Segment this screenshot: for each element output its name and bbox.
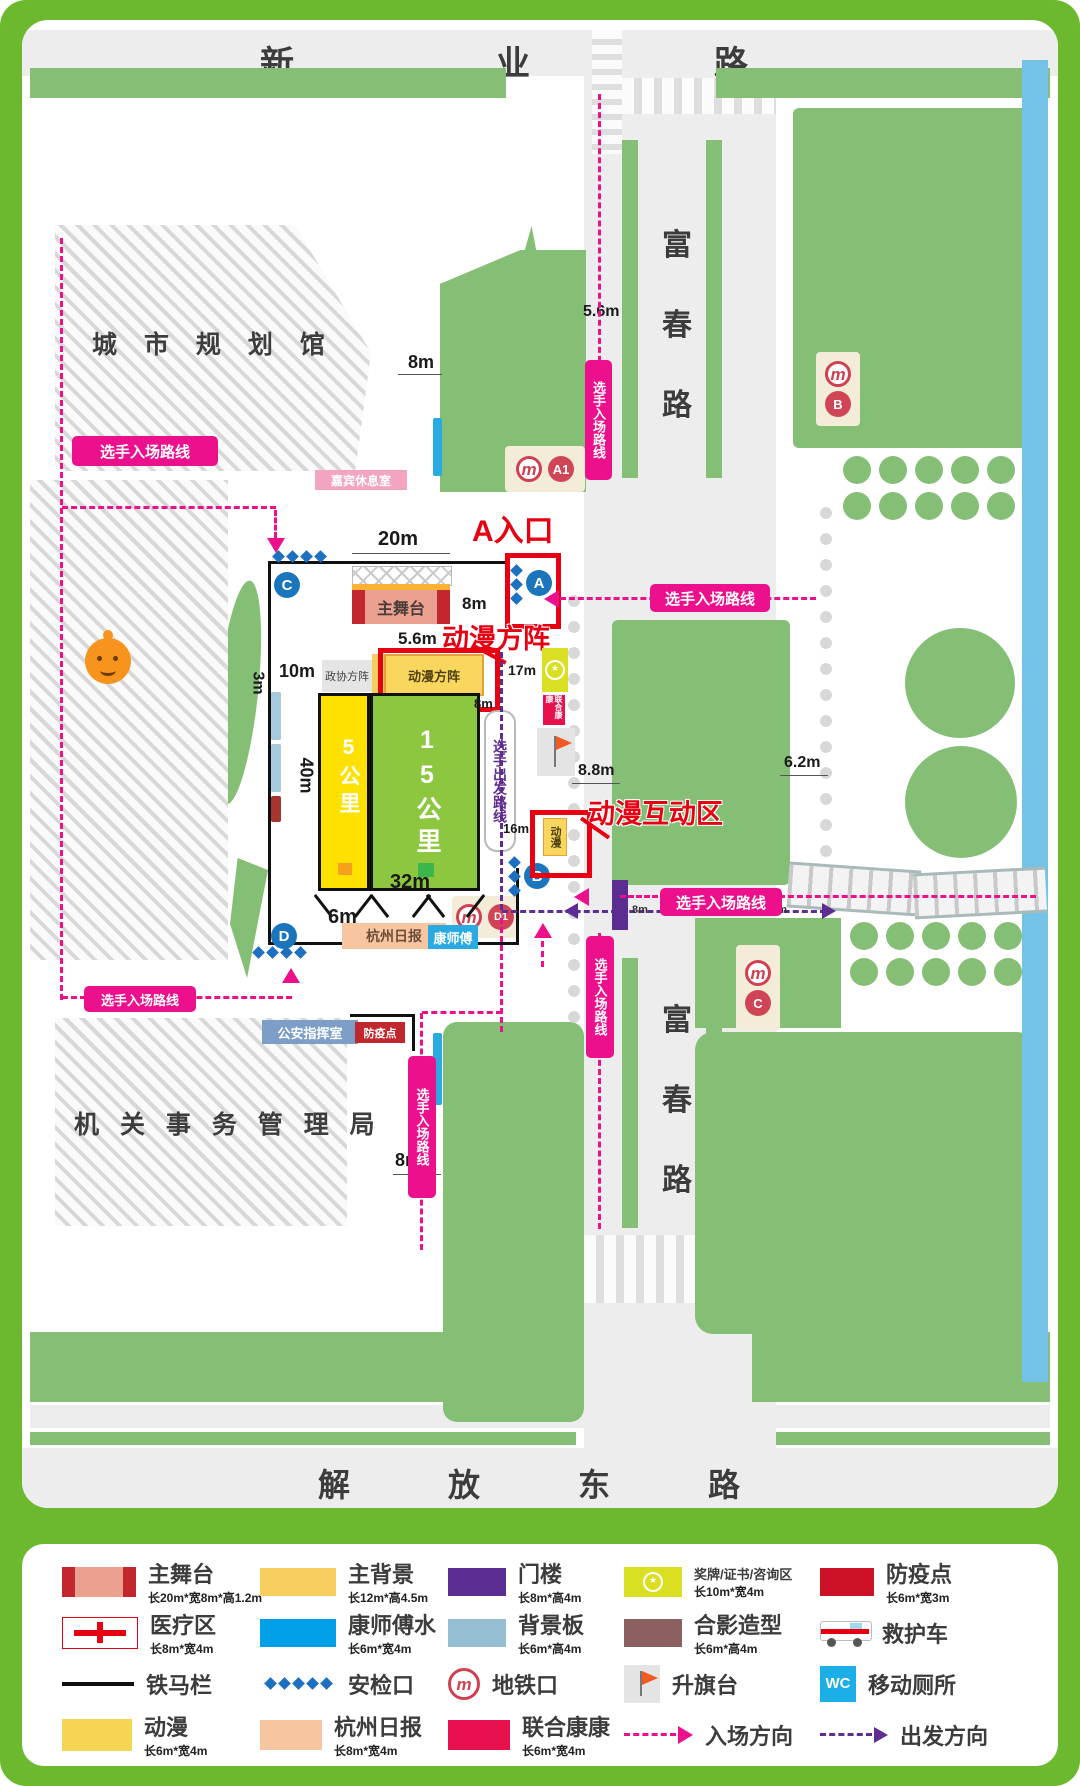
- dimension-line: [780, 775, 828, 776]
- police-command-text: 公安指挥室: [277, 1023, 342, 1042]
- gate-tower: [612, 880, 628, 930]
- medal-swatch: ★: [624, 1567, 682, 1597]
- legend-item-anime: 动漫长6m*宽4m: [62, 1710, 260, 1759]
- legend-item-board: 背景板长6m*高4m: [448, 1608, 624, 1657]
- tree-grid-ne: [843, 456, 1015, 520]
- mascot-icon: [85, 638, 131, 684]
- route-entry-label: 选手入场路线: [408, 1056, 436, 1198]
- master-kong-label: 康师傅: [433, 928, 472, 947]
- dimension-40m: 40m: [296, 757, 317, 793]
- entry-route-dashed: [422, 1011, 502, 1014]
- legend-item-security: 安检口: [260, 1668, 448, 1700]
- park-block-mid: [612, 620, 790, 885]
- legend-item-photo: 合影造型长6m*高4m: [624, 1608, 820, 1657]
- depart-arrow-right: [822, 903, 836, 919]
- entry-route-dashed: [598, 94, 601, 380]
- route-entry-label: 选手入场路线: [72, 436, 218, 466]
- vip-lounge-label: 嘉宾休息室: [315, 470, 407, 490]
- water-swatch: [260, 1619, 336, 1647]
- checkpoint-d: D: [271, 923, 297, 949]
- median-strip: [776, 1432, 1050, 1445]
- anime-zone-box: 动漫: [543, 818, 567, 856]
- anime-swatch: [62, 1719, 132, 1751]
- roadside-green: [752, 1332, 1050, 1402]
- legend-item-wc: WC 移动厕所: [820, 1666, 1052, 1702]
- legend-item-flag: 升旗台: [624, 1665, 820, 1703]
- union-kangkang-label: 联合康康: [545, 695, 563, 725]
- medical-swatch: [62, 1617, 138, 1649]
- start-block-15km-label: 15公里: [409, 726, 445, 860]
- dimension-line: [572, 783, 620, 784]
- dimension-6.2m: 6.2m: [784, 754, 820, 772]
- map-panel: 新 业 路 解 放 东 路 富 春 路 富 春 路: [22, 20, 1058, 1508]
- metro-exit-a1-badge: A1: [548, 456, 574, 482]
- dimension-5.6m-nw: 5.6m: [583, 303, 619, 321]
- vip-lounge-text: 嘉宾休息室: [331, 472, 391, 489]
- board-sign: [271, 744, 281, 792]
- barrier-swatch: [62, 1682, 134, 1686]
- dimension-8m-cross: 8m: [632, 904, 648, 916]
- red-sign: [271, 796, 281, 822]
- a-entrance-callout: A入口: [472, 506, 554, 550]
- street-fuchun-char: 春: [662, 300, 692, 344]
- security-check-icon: [254, 948, 305, 957]
- entry-arrow-up: [282, 968, 300, 983]
- flag-platform: [537, 728, 575, 776]
- park-block-sw: [443, 1022, 584, 1422]
- legend-panel: 主舞台长20m*宽8m*高1.2m 主背景长12m*高4.5m 门楼长8m*高4…: [22, 1544, 1058, 1766]
- entry-arrow-down: [267, 538, 285, 553]
- dimension-16m: 16m: [503, 821, 529, 836]
- checkpoint-c: C: [274, 572, 300, 598]
- median-strip: [622, 958, 638, 1228]
- legend-item-medal: ★ 奖牌/证书/咨询区长10m*宽4m: [624, 1564, 820, 1600]
- street-fuchun-char: 富: [662, 995, 692, 1039]
- backdrop-swatch: [260, 1568, 336, 1596]
- medal-certificate-area: ★: [542, 648, 568, 692]
- entry-direction-icon: [624, 1726, 693, 1744]
- master-kong-box: 康师傅: [428, 925, 478, 949]
- park-block-se: [695, 1032, 1035, 1334]
- epidemic-point-label: 防疫点: [355, 1022, 405, 1043]
- metro-station-a1: m A1: [505, 446, 585, 492]
- dimension-line: [398, 374, 442, 375]
- legend-item-epidemic: 防疫点长6m*宽3m: [820, 1557, 1052, 1606]
- medal-icon: ★: [545, 660, 565, 680]
- street-jiefangdong-road: [22, 1448, 1058, 1508]
- legend-item-daily: 杭州日报长8m*宽4m: [260, 1710, 448, 1759]
- entry-arrow-left: [544, 590, 559, 608]
- footbridge: [787, 861, 922, 916]
- entry-arrow-up: [534, 923, 552, 938]
- street-fuchun-char: 路: [662, 1155, 692, 1199]
- street-jiefangdong-char: 放: [448, 1460, 480, 1506]
- anime-zone-callout: 动漫互动区: [588, 792, 723, 831]
- median-strip: [622, 140, 638, 478]
- route-entry-label: 选手入场路线: [660, 888, 782, 916]
- dimension-8m-nw: 8m: [408, 352, 434, 373]
- roadside-green: [30, 68, 506, 98]
- depart-direction-icon: [820, 1727, 888, 1743]
- hangzhou-daily-label: 杭州日报: [366, 926, 422, 946]
- median-strip: [30, 1432, 576, 1445]
- entry-route-dashed: [274, 510, 277, 538]
- dimension-20m: 20m: [378, 528, 418, 551]
- entry-arrow-left: [574, 888, 589, 906]
- metro-station-c: m C: [736, 945, 780, 1031]
- tree-grid-se: [850, 922, 1022, 986]
- street-jiefangdong-char: 路: [708, 1460, 740, 1506]
- corral-fence-top: [268, 561, 506, 564]
- union-kangkang-box: 联合康康: [543, 695, 565, 725]
- street-jiefangdong-char: 东: [578, 1460, 610, 1506]
- roadside-green: [716, 68, 1050, 98]
- gate-swatch: [448, 1568, 506, 1596]
- metro-station-b: m B: [816, 352, 860, 426]
- photo-swatch: [624, 1619, 682, 1647]
- zhengxie-squad-box: 政协方阵: [322, 660, 372, 692]
- security-check-icon: [510, 858, 519, 895]
- building-planning-hall-label: 城 市 规 划 馆: [92, 325, 335, 361]
- entry-route-dashed: [500, 918, 503, 1032]
- start-block-5km: 5公里: [318, 693, 370, 891]
- dimension-10m: 10m: [279, 661, 315, 682]
- security-check-icon: [260, 1679, 336, 1688]
- legend-item-depart-direction: 出发方向: [820, 1719, 1052, 1751]
- zhengxie-squad-label: 政协方阵: [325, 668, 369, 684]
- legend-item-water: 康师傅水长6m*宽4m: [260, 1608, 448, 1657]
- legend-item-backdrop: 主背景长12m*高4.5m: [260, 1557, 448, 1606]
- dimension-8m-route: 8m: [474, 696, 493, 711]
- dimension-32m: 32m: [390, 871, 430, 894]
- entry-route-dashed: [770, 895, 1036, 898]
- flag-icon: [624, 1665, 660, 1703]
- green-wedge: [230, 858, 268, 978]
- street-jiefangdong-char: 解: [318, 1460, 350, 1506]
- metro-icon: m: [448, 1668, 480, 1700]
- legend-item-medical: 医疗区长8m*宽4m: [62, 1608, 260, 1657]
- street-fuchun-char: 富: [662, 220, 692, 264]
- metro-exit-c-badge: C: [745, 990, 771, 1016]
- event-map-poster: 新 业 路 解 放 东 路 富 春 路 富 春 路: [0, 0, 1080, 1786]
- footbridge: [913, 867, 1047, 920]
- dimension-line: [352, 553, 450, 554]
- street-fuchun-char: 春: [662, 1075, 692, 1119]
- security-check-icon: [274, 552, 325, 561]
- wc-icon: WC: [820, 1666, 856, 1702]
- stage-truss: [352, 566, 452, 586]
- corral-fence-left: [268, 561, 271, 945]
- route-entry-label: 选手入场路线: [586, 936, 614, 1058]
- police-command-label: 公安指挥室: [262, 1020, 358, 1044]
- legend-item-metro: m 地铁口: [448, 1668, 624, 1700]
- anime-squad-label: 动漫方阵: [408, 666, 460, 685]
- start-block-15km: 15公里: [370, 693, 480, 891]
- building-admin-bureau-label: 机 关 事 务 管 理 局: [74, 1105, 382, 1141]
- dimension-8m-stage: 8m: [462, 594, 487, 614]
- marker-square-orange: [338, 863, 352, 875]
- legend-item-ambulance: 救护车: [820, 1617, 1052, 1649]
- street-fuchun-char: 路: [662, 380, 692, 424]
- main-stage: 主舞台: [352, 584, 450, 624]
- blue-sign: [433, 418, 442, 476]
- board-swatch: [448, 1619, 506, 1647]
- legend-item-gate: 门楼长8m*高4m: [448, 1557, 624, 1606]
- entry-route-dashed: [62, 506, 276, 509]
- board-sign: [271, 692, 281, 740]
- union-swatch: [448, 1720, 510, 1750]
- legend-item-stage: 主舞台长20m*宽8m*高1.2m: [62, 1557, 260, 1606]
- fence-tick: [426, 894, 446, 918]
- dimension-8.8m: 8.8m: [578, 762, 614, 780]
- route-entry-label: 选手入场路线: [585, 360, 612, 480]
- legend-item-union: 联合康康长6m*宽4m: [448, 1710, 624, 1759]
- ambulance-icon: [820, 1617, 870, 1649]
- pedestrian-crossing: [592, 30, 622, 154]
- metro-icon: m: [825, 361, 851, 387]
- anime-zone-box-label: 动漫: [547, 826, 563, 848]
- entry-route-dashed: [60, 238, 63, 1000]
- depart-route-dashed: [500, 652, 503, 910]
- metro-icon: m: [745, 960, 771, 986]
- epidemic-swatch: [820, 1568, 874, 1596]
- dimension-17m: 17m: [508, 662, 536, 678]
- entry-route-dashed: [541, 941, 544, 967]
- big-tree-circle: [905, 628, 1015, 738]
- metro-exit-b-badge: B: [825, 391, 851, 417]
- legend-item-entry-direction: 入场方向: [624, 1719, 820, 1751]
- dimension-3m: 3m: [249, 671, 267, 694]
- anime-squad-box: 动漫方阵: [384, 654, 484, 696]
- dimension-5.6m-stage: 5.6m: [398, 629, 437, 649]
- epidemic-point-text: 防疫点: [364, 1025, 397, 1041]
- stage-swatch: [62, 1567, 136, 1597]
- route-entry-label: 选手入场路线: [650, 584, 770, 612]
- big-tree-circle: [905, 746, 1017, 858]
- entry-route-dashed: [620, 895, 658, 898]
- legend-item-barrier: 铁马栏: [62, 1668, 260, 1700]
- river-strip: [1022, 60, 1048, 1382]
- median-strip: [706, 140, 722, 478]
- fence-tick: [370, 894, 390, 918]
- metro-icon: m: [516, 456, 542, 482]
- tree-dots-column: [818, 500, 834, 892]
- daily-swatch: [260, 1720, 322, 1750]
- start-block-5km-label: 5公里: [333, 736, 363, 819]
- route-entry-label: 选手入场路线: [84, 986, 196, 1012]
- main-stage-label: 主舞台: [377, 595, 425, 619]
